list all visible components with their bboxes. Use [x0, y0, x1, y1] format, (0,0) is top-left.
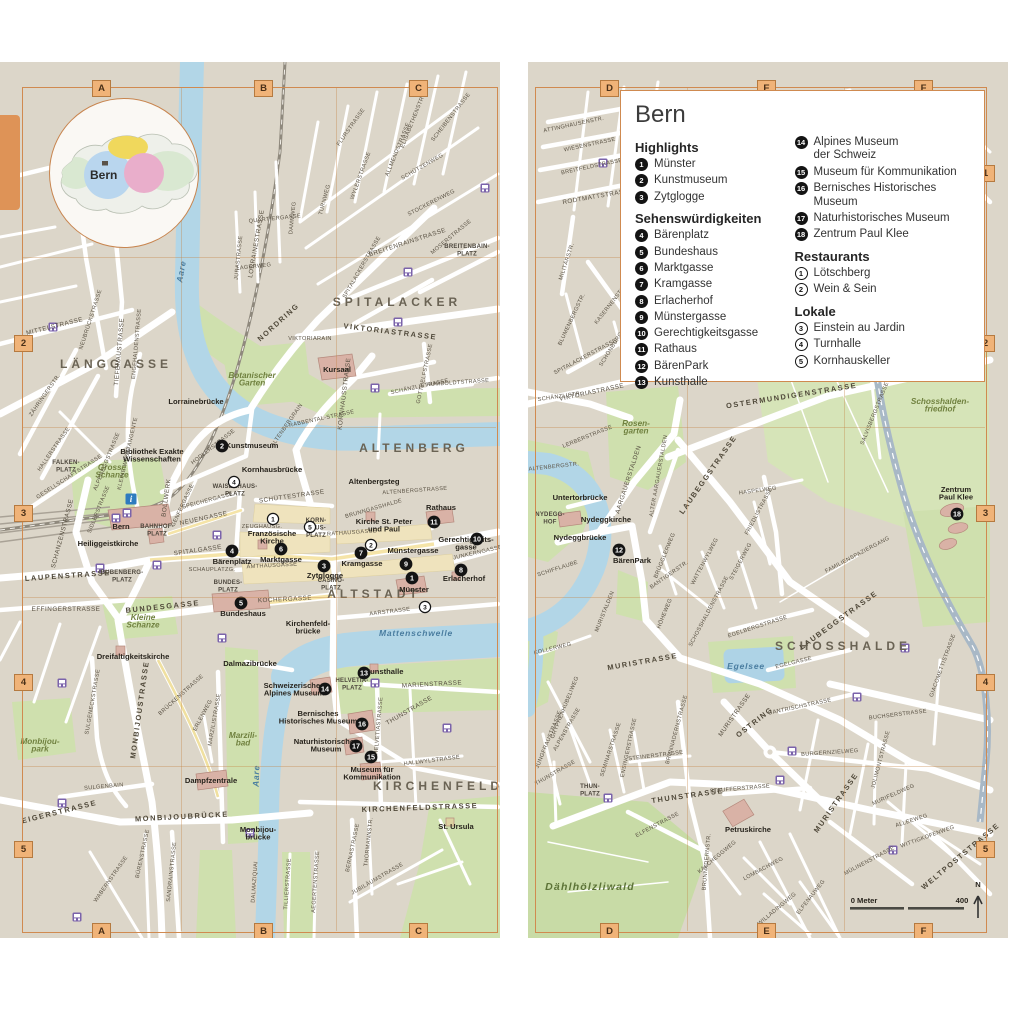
poi-label: Bern — [112, 522, 130, 531]
legend-item-label: Kunstmuseum — [654, 174, 728, 188]
svg-text:2: 2 — [220, 441, 224, 450]
water-label: Egelsee — [727, 661, 765, 671]
legend-section-heading: Restaurants — [795, 249, 971, 264]
sight-marker-icon: 6 — [635, 262, 648, 275]
svg-text:2: 2 — [369, 542, 373, 549]
sight-marker[interactable]: 7 — [355, 547, 368, 560]
sight-marker-icon: 9 — [635, 311, 648, 324]
sight-marker[interactable]: 4 — [226, 545, 239, 558]
legend-item-label: Münster — [654, 158, 696, 172]
poi-label: Kursaal — [323, 365, 351, 374]
poi-label: Rathaus — [426, 503, 456, 512]
tourist-info-icon: i — [126, 494, 137, 505]
poi-label: Zytglogge — [307, 571, 343, 580]
legend-item[interactable]: 4Bärenplatz — [635, 229, 785, 243]
sight-marker-icon: 15 — [795, 166, 808, 179]
page-gutter — [500, 62, 528, 938]
poi-label: Nydeggbrücke — [554, 533, 607, 542]
legend-item[interactable]: 18Zentrum Paul Klee — [795, 228, 971, 242]
transit-stop-icon — [58, 679, 67, 688]
legend-item-label: BärenPark — [654, 360, 708, 374]
sight-marker-icon: 4 — [635, 229, 648, 242]
sight-marker[interactable]: 16 — [356, 718, 369, 731]
legend-item-label: Bundeshaus — [654, 246, 718, 260]
sight-marker[interactable]: 1 — [406, 572, 419, 585]
transit-stop-icon — [776, 776, 785, 785]
bern-city-square — [102, 161, 108, 166]
legend-item-label: Marktgasse — [654, 262, 713, 276]
sight-marker-icon: 12 — [635, 360, 648, 373]
svg-text:16: 16 — [358, 719, 366, 728]
transit-stop-icon — [853, 693, 862, 702]
map-page-left: i LÄNGGASSESPITALACKERALTENBERGALTSTADTK… — [0, 62, 500, 938]
poi-label: Kunsthalle — [365, 667, 404, 676]
district-label: ALTENBERG — [359, 441, 469, 455]
transit-stop-icon — [213, 531, 222, 540]
poi-label: Nydeggkirche — [581, 515, 631, 524]
grid-number: 5 — [14, 841, 33, 858]
legend-item[interactable]: 2Wein & Sein — [795, 283, 971, 297]
grid-letter: D — [600, 923, 619, 938]
transit-stop-icon — [371, 679, 380, 688]
legend-item-label: Wein & Sein — [814, 283, 877, 297]
legend-item[interactable]: 4Turnhalle — [795, 338, 971, 352]
grid-letter: B — [254, 80, 273, 97]
grid-number: 3 — [14, 505, 33, 522]
sight-marker[interactable]: 3 — [318, 560, 331, 573]
legend-item[interactable]: 15Museum für Kommunikation — [795, 166, 971, 180]
map-page-right: SCHOSSHALDERosen-gartenSchosshalden-frie… — [528, 62, 1008, 938]
legend-item[interactable]: 11Rathaus — [635, 343, 785, 357]
transit-stop-icon — [394, 318, 403, 327]
sight-marker-icon: 18 — [795, 228, 808, 241]
legend-item[interactable]: 5Kornhauskeller — [795, 355, 971, 369]
svg-text:13: 13 — [360, 668, 368, 677]
poi-label: Münster — [399, 585, 429, 594]
sight-marker[interactable]: 12 — [613, 544, 626, 557]
transit-stop-icon — [604, 794, 613, 803]
svg-text:5: 5 — [308, 524, 312, 531]
poi-label: Kramgasse — [342, 559, 383, 568]
svg-text:17: 17 — [352, 741, 360, 750]
sight-marker-icon: 17 — [795, 212, 808, 225]
grid-letter: F — [914, 923, 933, 938]
poi-label: Münstergasse — [387, 546, 438, 555]
poi-label: Altenbergsteg — [348, 477, 399, 486]
transit-stop-icon — [443, 724, 452, 733]
sight-marker[interactable]: 6 — [275, 543, 288, 556]
map-legend: Bern Highlights1Münster2Kunstmuseum3Zytg… — [620, 90, 985, 382]
legend-item-label: Rathaus — [654, 343, 697, 357]
legend-column-1: Highlights1Münster2Kunstmuseum3Zytglogge… — [635, 133, 785, 392]
legend-item[interactable]: 1Lötschberg — [795, 267, 971, 281]
restaurant-marker[interactable]: 1 — [267, 513, 278, 524]
legend-item-label: Einstein au Jardin — [814, 322, 905, 336]
svg-text:10: 10 — [473, 534, 481, 543]
legend-item-label: Bernisches Historisches Museum — [814, 182, 937, 210]
sight-marker[interactable]: 9 — [400, 558, 413, 571]
street-label: CASINO-PLATZ — [318, 578, 345, 592]
restaurant-marker[interactable]: 5 — [304, 521, 315, 532]
sight-marker[interactable]: 5 — [235, 597, 248, 610]
grid-number: 4 — [976, 674, 995, 691]
svg-text:12: 12 — [615, 545, 623, 554]
sight-marker-icon: 3 — [635, 191, 648, 204]
legend-item-label: Turnhalle — [814, 338, 862, 352]
restaurant-marker-icon: 4 — [795, 338, 808, 351]
poi-label: N — [975, 880, 980, 889]
legend-item[interactable]: 8Erlacherhof — [635, 295, 785, 309]
legend-item-label: Museum für Kommunikation — [814, 166, 957, 180]
restaurant-marker-icon: 5 — [795, 355, 808, 368]
legend-item[interactable]: 16Bernisches Historisches Museum — [795, 182, 971, 210]
nature-label: KleineSchanze — [126, 613, 160, 630]
transit-stop-icon — [371, 384, 380, 393]
legend-column-2: 14Alpines Museum der Schweiz15Museum für… — [795, 133, 971, 392]
district-label: SPITALACKER — [333, 295, 461, 309]
svg-text:6: 6 — [279, 544, 283, 553]
svg-text:18: 18 — [953, 509, 961, 518]
svg-text:15: 15 — [367, 752, 375, 761]
legend-item[interactable]: 7Kramgasse — [635, 278, 785, 292]
legend-item-label: Gerechtigkeitsgasse — [654, 327, 758, 341]
grid-letter: A — [92, 80, 111, 97]
legend-item[interactable]: 9Münstergasse — [635, 311, 785, 325]
grid-number: 3 — [976, 505, 995, 522]
svg-text:5: 5 — [239, 598, 243, 607]
legend-section-heading: Sehenswürdigkeiten — [635, 211, 785, 226]
poi-label: Untertorbrücke — [553, 493, 608, 502]
legend-item[interactable]: 3Einstein au Jardin — [795, 322, 971, 336]
sight-marker-icon: 8 — [635, 295, 648, 308]
svg-text:3: 3 — [322, 561, 326, 570]
restaurant-marker[interactable]: 3 — [419, 601, 430, 612]
legend-item[interactable]: 6Marktgasse — [635, 262, 785, 276]
legend-item-label: Münstergasse — [654, 311, 726, 325]
sight-marker[interactable]: 15 — [365, 751, 378, 764]
legend-item[interactable]: 5Bundeshaus — [635, 246, 785, 260]
street-label: VIKTORIARAIN — [288, 336, 332, 342]
restaurant-marker-icon: 2 — [795, 283, 808, 296]
street-label: SCHAUPLATZG. — [189, 567, 236, 573]
poi-label: Bibliothek ExakteWissenschaften — [120, 447, 183, 464]
svg-text:1: 1 — [271, 516, 275, 523]
water-label: Aare — [251, 765, 262, 788]
grid-number: 5 — [976, 841, 995, 858]
legend-item-label: Erlacherhof — [654, 295, 713, 309]
poi-label: St. Ursula — [438, 822, 474, 831]
transit-stop-icon — [788, 747, 797, 756]
legend-item[interactable]: 14Alpines Museum der Schweiz — [795, 136, 971, 164]
poi-label: Dreifaltigkeitskirche — [97, 652, 170, 661]
sight-marker-icon: 16 — [795, 182, 808, 195]
poi-label: Kornhausbrücke — [242, 465, 302, 474]
sight-marker[interactable]: 13 — [358, 667, 371, 680]
transit-stop-icon — [123, 509, 132, 518]
grid-letter: E — [757, 923, 776, 938]
poi-label: Marktgasse — [260, 555, 302, 564]
grid-letter: C — [409, 80, 428, 97]
street-label: THUN-PLATZ — [580, 784, 600, 798]
grid-letter: D — [600, 80, 619, 97]
poi-label: SchweizerischesAlpines Museum — [264, 681, 325, 698]
grid-number: 4 — [14, 674, 33, 691]
grid-number: 2 — [14, 335, 33, 352]
poi-label: Lorrainebrücke — [168, 397, 223, 406]
inset-bern-label: Bern — [90, 168, 117, 182]
nature-label: Dählhölzliwald — [545, 881, 635, 893]
poi-label: BärenPark — [613, 556, 652, 565]
legend-item[interactable]: 13Kunsthalle — [635, 376, 785, 390]
svg-text:11: 11 — [430, 517, 438, 526]
street-label: EFFINGERSTRASSE — [32, 606, 101, 613]
legend-section-heading: Highlights — [635, 140, 785, 155]
sight-marker-icon: 13 — [635, 376, 648, 389]
legend-item[interactable]: 12BärenPark — [635, 360, 785, 374]
grid-letter: B — [254, 923, 273, 938]
svg-text:9: 9 — [404, 559, 408, 568]
transit-stop-icon — [218, 634, 227, 643]
svg-text:4: 4 — [232, 479, 236, 486]
page-title: Bern — [635, 101, 970, 129]
legend-item[interactable]: 1Münster — [635, 158, 785, 172]
sight-marker[interactable]: 8 — [455, 564, 468, 577]
sight-marker[interactable]: 17 — [350, 740, 363, 753]
chapter-tab[interactable] — [0, 115, 20, 210]
legend-item[interactable]: 10Gerechtigkeitsgasse — [635, 327, 785, 341]
legend-item-label: Zentrum Paul Klee — [814, 228, 909, 242]
sight-marker[interactable]: 11 — [428, 516, 441, 529]
sight-marker[interactable]: 18 — [951, 508, 964, 521]
guidebook-map-spread: i LÄNGGASSESPITALACKERALTENBERGALTSTADTK… — [0, 0, 1024, 1024]
legend-item-label: Kunsthalle — [654, 376, 708, 390]
sight-marker-icon: 7 — [635, 278, 648, 291]
svg-text:1: 1 — [410, 573, 414, 582]
sight-marker-icon: 2 — [635, 174, 648, 187]
transit-stop-icon — [481, 184, 490, 193]
svg-text:3: 3 — [423, 604, 427, 611]
sight-marker-icon: 5 — [635, 246, 648, 259]
sight-marker[interactable]: 10 — [471, 533, 484, 546]
poi-label: Kunstmuseum — [226, 441, 279, 450]
poi-label: Dampfzentrale — [185, 776, 237, 785]
poi-label: Heiliggeistkirche — [78, 539, 139, 548]
sight-marker-icon: 14 — [795, 136, 808, 149]
sight-marker-icon: 1 — [635, 158, 648, 171]
grid-letter: A — [92, 923, 111, 938]
poi-label: Bundeshaus — [220, 609, 266, 618]
svg-text:8: 8 — [459, 565, 463, 574]
legend-item[interactable]: 17Naturhistorisches Museum — [795, 212, 971, 226]
transit-stop-icon — [73, 913, 82, 922]
sight-marker-icon: 11 — [635, 343, 648, 356]
water-label: Mattenschwelle — [379, 628, 453, 638]
legend-section-heading: Lokale — [795, 304, 971, 319]
sight-marker-icon: 10 — [635, 327, 648, 340]
legend-item-label: Lötschberg — [814, 267, 871, 281]
transit-stop-icon — [153, 561, 162, 570]
svg-text:4: 4 — [230, 546, 234, 555]
nature-label: Rosen-garten — [622, 419, 650, 436]
svg-text:14: 14 — [321, 684, 329, 693]
poi-label: Museum fürKommunikation — [343, 765, 401, 782]
restaurant-marker-icon: 1 — [795, 267, 808, 280]
sight-marker[interactable]: 2 — [216, 440, 229, 453]
svg-text:7: 7 — [359, 548, 363, 557]
legend-item-label: Naturhistorisches Museum — [814, 212, 950, 226]
restaurant-marker[interactable]: 2 — [365, 539, 376, 550]
sight-marker[interactable]: 14 — [319, 683, 332, 696]
poi-label: 0 Meter — [851, 896, 878, 905]
street-label: FALKEN-PLATZ — [52, 460, 79, 474]
poi-label: Bärenplatz — [213, 557, 252, 566]
legend-item[interactable]: 3Zytglogge — [635, 191, 785, 205]
restaurant-marker-icon: 3 — [795, 322, 808, 335]
legend-item-label: Zytglogge — [654, 191, 705, 205]
district-label: SCHOSSHALDE — [775, 639, 911, 653]
legend-item-label: Kramgasse — [654, 278, 712, 292]
restaurant-marker[interactable]: 4 — [228, 476, 239, 487]
transit-stop-icon — [404, 268, 413, 277]
legend-item-label: Bärenplatz — [654, 229, 709, 243]
grid-letter: C — [409, 923, 428, 938]
poi-label: 400 — [956, 896, 969, 905]
switzerland-inset-map: Bern — [49, 98, 199, 248]
legend-item-label: Alpines Museum der Schweiz — [814, 136, 899, 164]
poi-label: ZentrumPaul Klee — [939, 485, 973, 502]
legend-item[interactable]: 2Kunstmuseum — [635, 174, 785, 188]
poi-label: Petruskirche — [725, 825, 771, 834]
poi-label: Dalmazibrücke — [223, 659, 277, 668]
legend-item-label: Kornhauskeller — [814, 355, 891, 369]
